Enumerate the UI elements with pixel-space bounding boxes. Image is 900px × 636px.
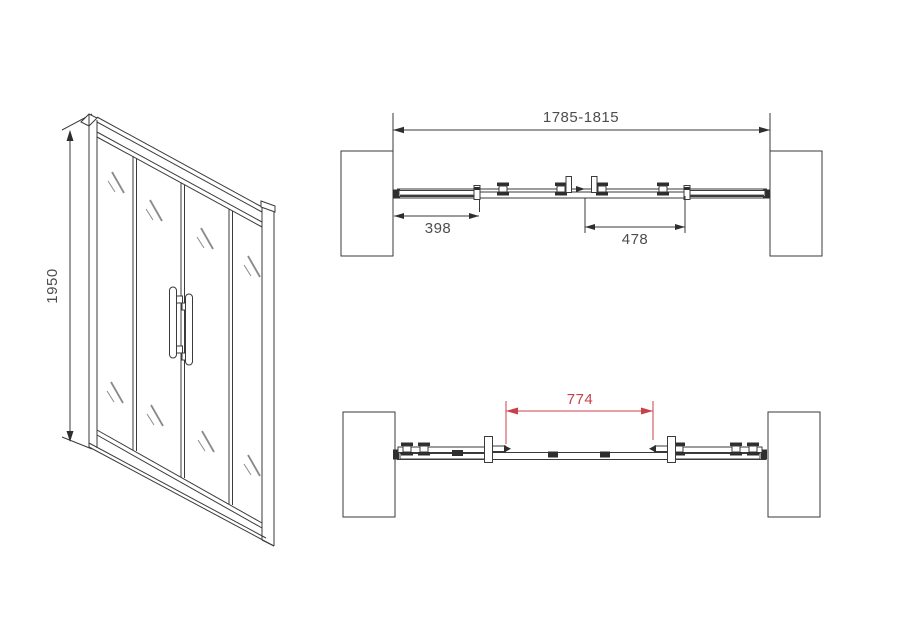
opening-width-dimension-label: 774 (567, 391, 594, 408)
fixed-panel-dimension-label: 398 (425, 220, 452, 237)
glass-panel-mullions (133, 156, 233, 505)
opening-width-dimension: 774 (506, 391, 653, 444)
handle-plate-left (485, 437, 493, 463)
plan-view-open: 774 (343, 391, 820, 517)
handle-knob-left (566, 177, 572, 193)
height-dimension-label: 1950 (44, 268, 61, 303)
overall-width-dimension-label: 1785-1815 (543, 109, 619, 126)
technical-drawing: 1950 (0, 0, 900, 636)
glass-reflection-marks (107, 172, 260, 476)
overall-width-dimension: 1785-1815 (393, 109, 770, 151)
track-guide-left (548, 452, 558, 458)
centre-marker (576, 186, 585, 192)
handle-tip-right (649, 445, 656, 453)
fixed-panel-dimension: 398 (394, 199, 480, 237)
sliding-panel-dimension: 478 (585, 196, 685, 248)
track-guide-right (600, 452, 610, 458)
handle-plate-right (668, 437, 676, 463)
stacked-panels-right (649, 437, 767, 463)
right-wall-section (768, 412, 820, 517)
door-track-assembly (393, 177, 770, 200)
drawing-canvas: 1950 (0, 0, 900, 636)
left-wall-section (343, 412, 395, 517)
door-frame (81, 114, 275, 546)
height-dimension: 1950 (44, 114, 92, 449)
handle-knob-right (592, 177, 598, 193)
right-wall-section (770, 151, 822, 256)
left-wall-section (341, 151, 393, 256)
plan-view-closed: 1785-1815 (341, 109, 822, 256)
stacked-panels-left (393, 437, 511, 463)
front-view-door-elevation: 1950 (44, 114, 275, 546)
handle-tip-left (504, 445, 511, 453)
sliding-panel-dimension-label: 478 (622, 231, 649, 248)
